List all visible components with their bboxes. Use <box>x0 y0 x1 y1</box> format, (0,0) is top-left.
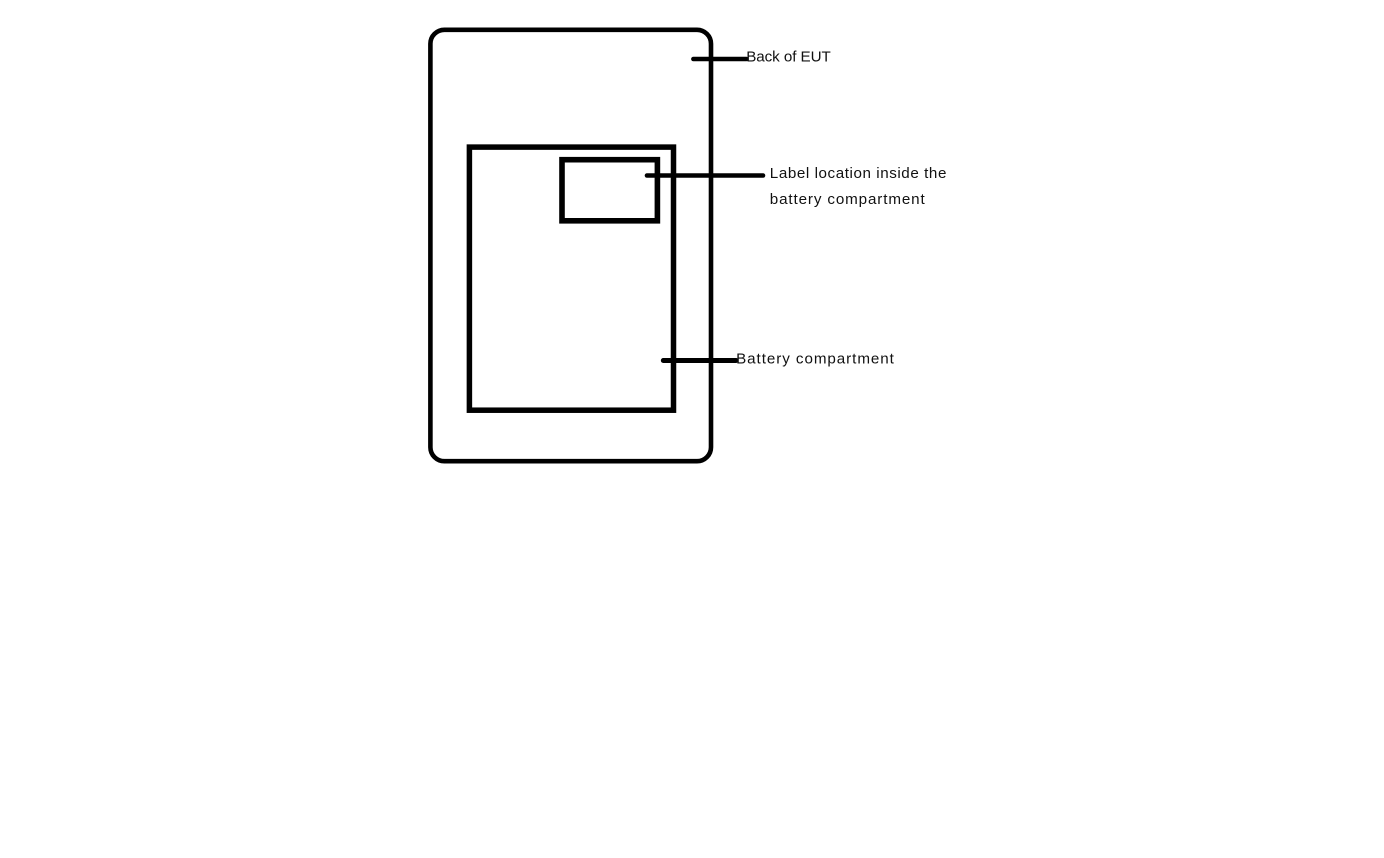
svg-text:Label location inside the: Label location inside the <box>770 165 947 182</box>
svg-text:battery compartment: battery compartment <box>770 191 926 208</box>
svg-text:Battery compartment: Battery compartment <box>736 350 895 367</box>
svg-text:Back of EUT: Back of EUT <box>746 49 831 66</box>
